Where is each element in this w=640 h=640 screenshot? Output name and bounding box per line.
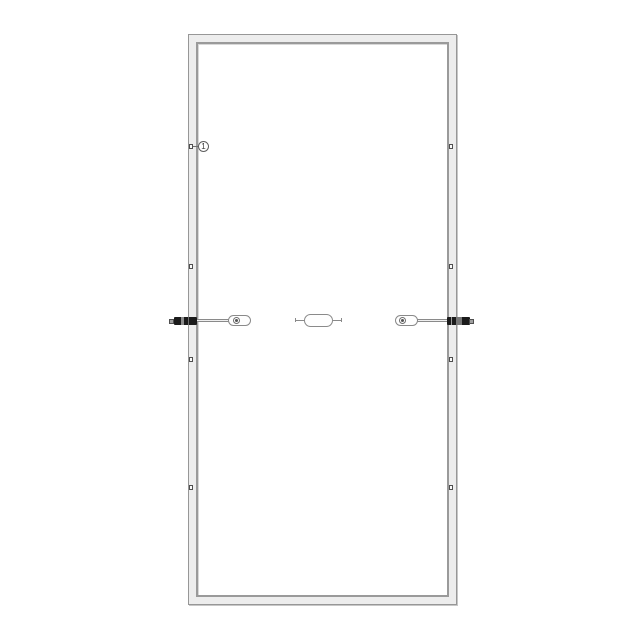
- connector-notch: [188, 317, 189, 325]
- connector-left: [174, 317, 197, 325]
- connector-notch: [451, 317, 452, 325]
- mounting-hole-left-2: [189, 264, 193, 269]
- drawing-canvas: 1: [0, 0, 640, 640]
- center-box-stub-left: [296, 320, 304, 321]
- mounting-hole-right-1: [449, 144, 453, 149]
- mounting-hole-right-4: [449, 485, 453, 490]
- connector-right-tip: [469, 319, 474, 324]
- port-dot-icon: [235, 319, 238, 322]
- mounting-hole-right-3: [449, 357, 453, 362]
- junction-box-center: [304, 314, 333, 327]
- center-box-stub-right: [333, 320, 341, 321]
- mounting-hole-left-3: [189, 357, 193, 362]
- port-dot-icon: [401, 319, 404, 322]
- mounting-hole-right-2: [449, 264, 453, 269]
- cable-right: [417, 319, 449, 322]
- cable-left: [196, 319, 229, 322]
- callout-balloon: 1: [198, 141, 209, 152]
- junction-box-right-port: [399, 317, 406, 324]
- mounting-hole-left-4: [189, 485, 193, 490]
- center-box-stub-tick-right: [341, 318, 342, 322]
- connector-notch: [456, 317, 462, 325]
- connector-notch: [181, 317, 184, 325]
- junction-box-left-port: [233, 317, 240, 324]
- connector-right: [447, 317, 470, 325]
